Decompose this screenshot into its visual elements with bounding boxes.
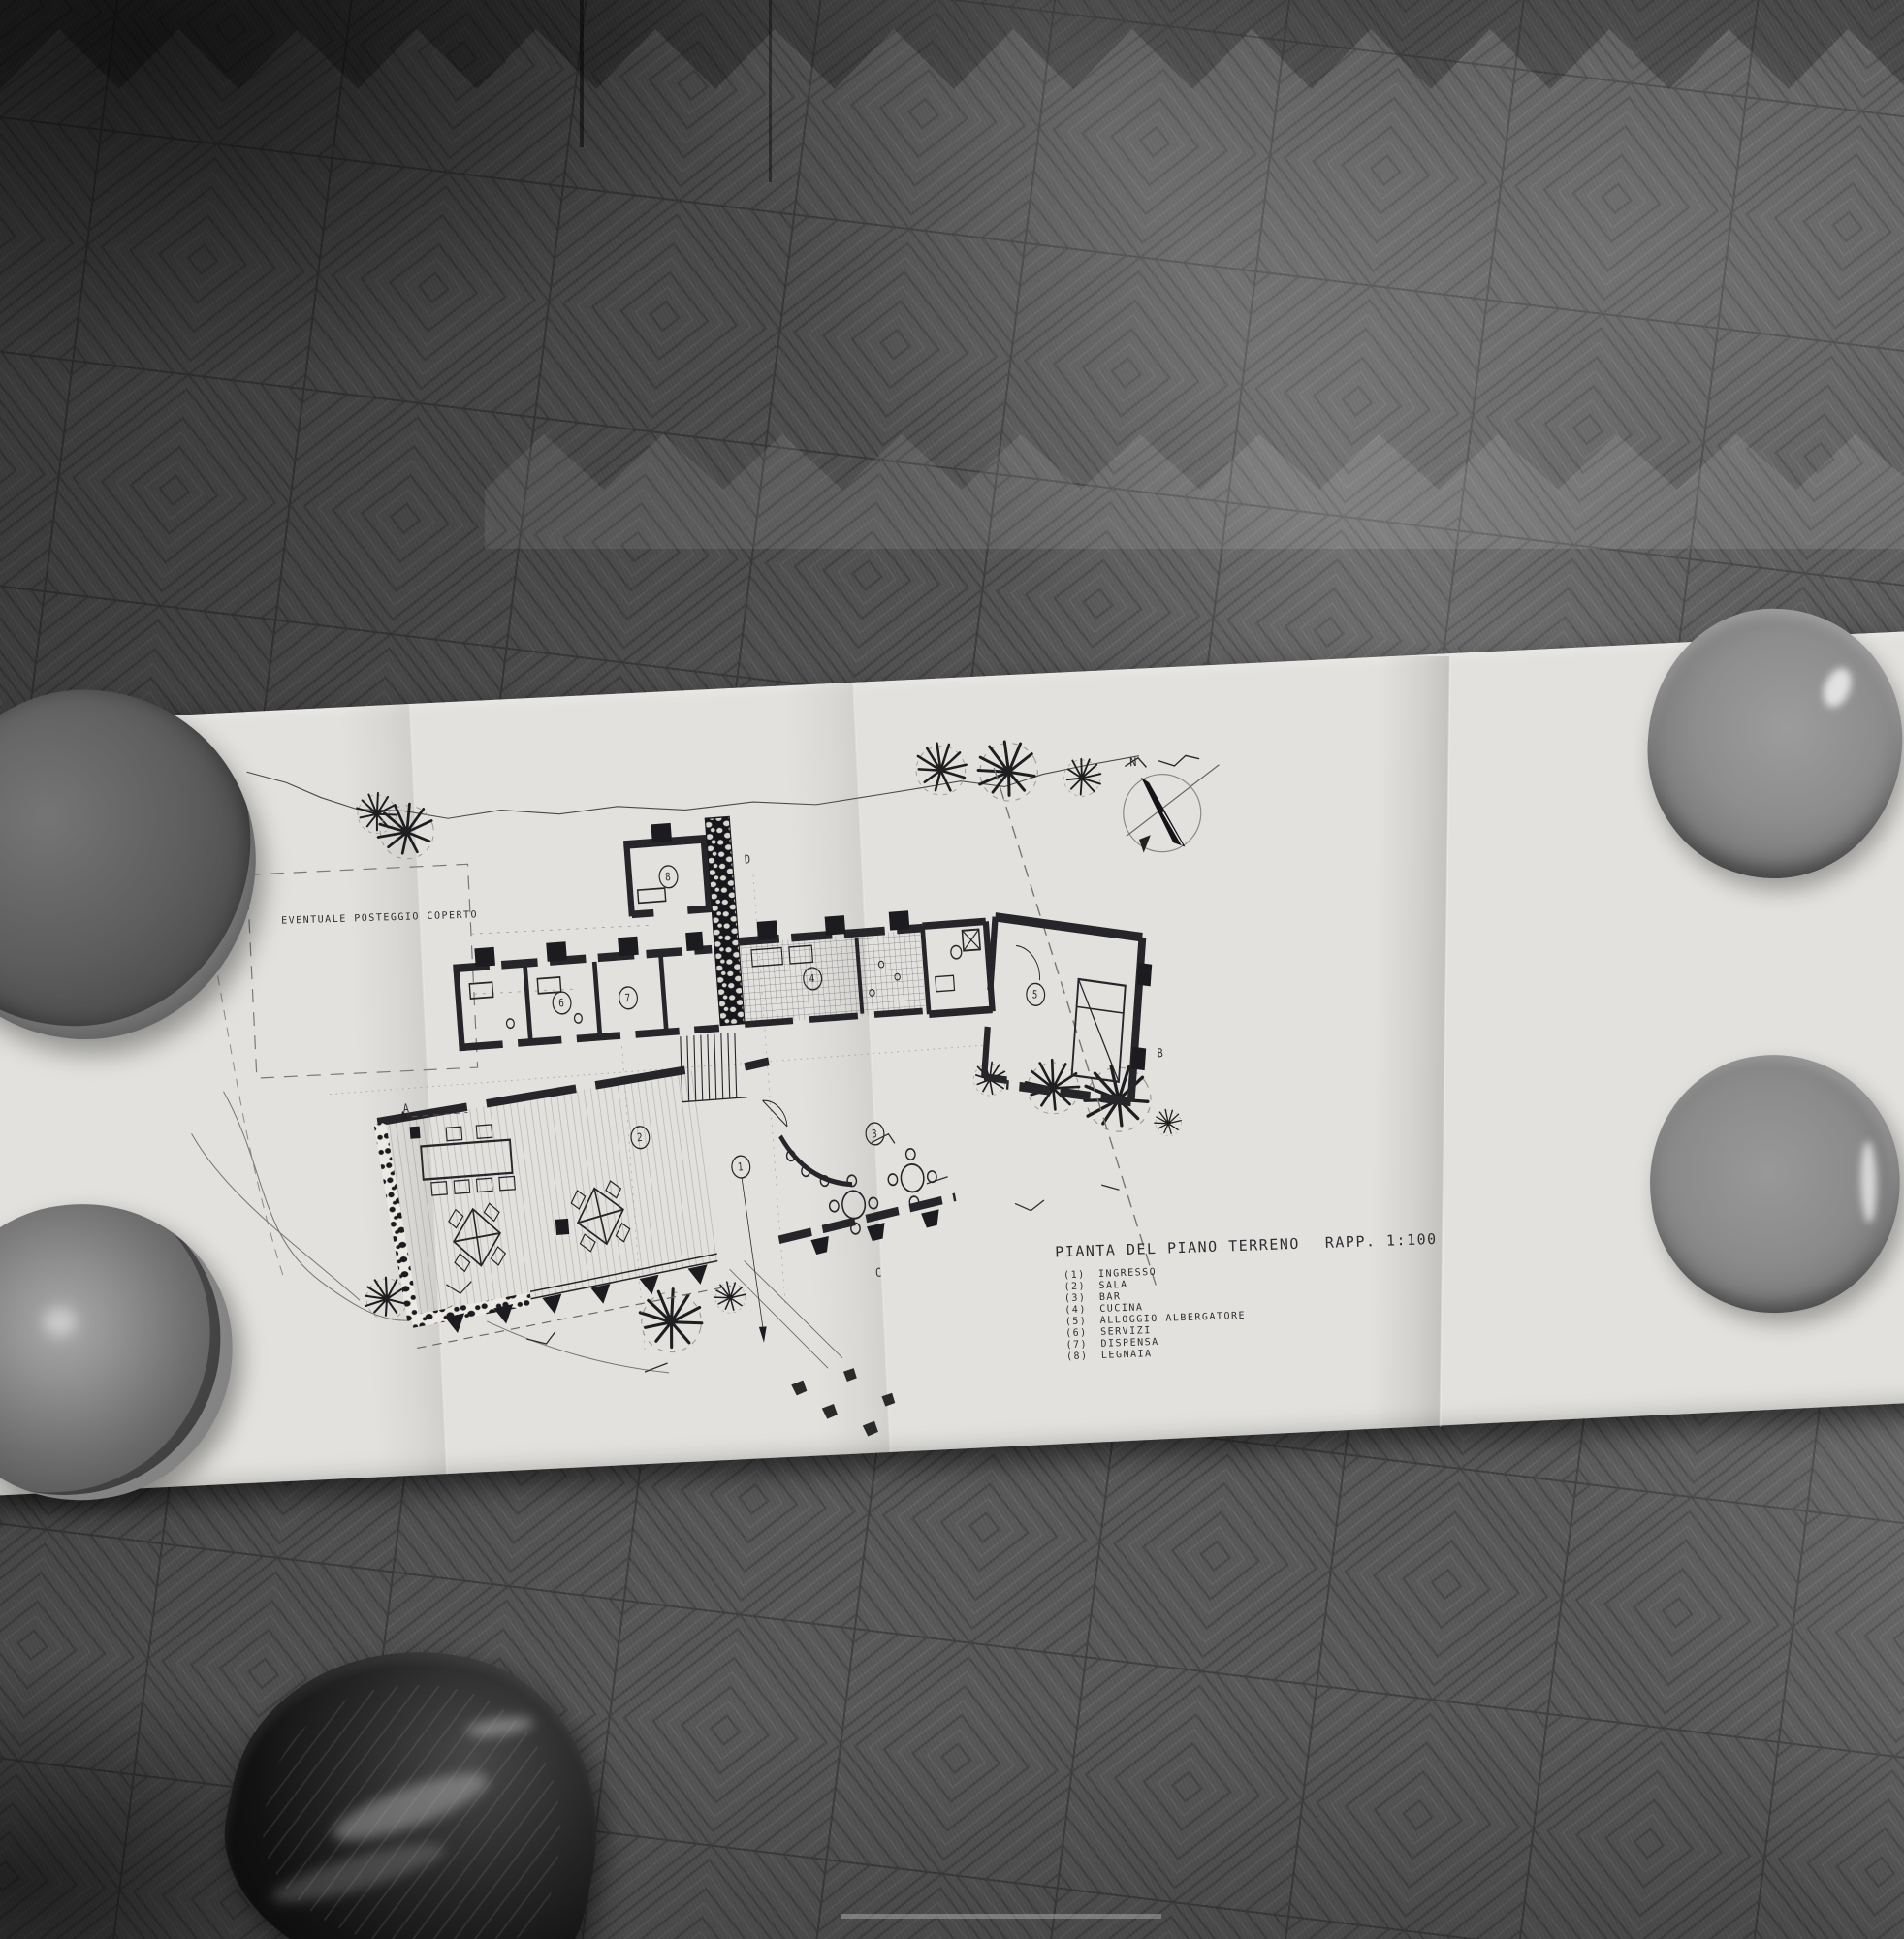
svg-text:7: 7	[624, 992, 632, 1005]
tree-icon	[633, 1284, 708, 1358]
room-number-6: 6	[552, 991, 571, 1014]
room-number-3: 3	[865, 1122, 884, 1145]
section-marker-d: D	[744, 852, 751, 867]
svg-text:6: 6	[558, 997, 566, 1010]
building-plan: 5	[311, 786, 1190, 1475]
shoe-highlight	[464, 1714, 534, 1741]
stone-wall	[705, 816, 745, 1025]
compass-north-label: N	[1129, 755, 1138, 769]
bowl-highlight	[1860, 1141, 1877, 1223]
svg-text:3: 3	[872, 1128, 879, 1141]
guest-wing: 5	[984, 917, 1154, 1103]
legend-item: (1)INGRESSO	[1063, 1267, 1157, 1281]
legend-item: (5)ALLOGGIO ALBERGATORE	[1065, 1311, 1247, 1327]
bowl-highlight	[1818, 664, 1856, 712]
site-plan-drawing: N EVENTUALE POSTEGGIO COPERTO	[0, 628, 1904, 1499]
plank-seam	[769, 0, 772, 182]
plan-legend: (1)INGRESSO (2)SALA (3)BAR (4)CUCINA (5)…	[1063, 1264, 1248, 1362]
photograph: N EVENTUALE POSTEGGIO COPERTO	[0, 0, 1904, 1939]
tree-icon	[1154, 1109, 1182, 1137]
svg-text:8: 8	[665, 871, 673, 884]
room-number-8: 8	[658, 865, 678, 888]
tree-icon	[353, 789, 400, 837]
svg-text:5: 5	[1031, 988, 1039, 1001]
tree-icon	[1056, 750, 1108, 803]
shoe-highlight	[327, 1761, 494, 1854]
tree-icon	[967, 731, 1048, 812]
plank-seam	[580, 0, 584, 147]
shoe-highlight	[269, 1833, 450, 1915]
section-marker-b: B	[1157, 1046, 1164, 1061]
svg-text:2: 2	[636, 1131, 644, 1145]
svg-text:1: 1	[737, 1160, 745, 1174]
room-number-5: 5	[1026, 982, 1045, 1006]
compass-rose: N	[1121, 751, 1223, 854]
room-number-7: 7	[619, 986, 638, 1009]
paper-sheet: N EVENTUALE POSTEGGIO COPERTO	[0, 628, 1904, 1499]
legend-item: (3)BAR	[1064, 1291, 1122, 1304]
terrace-steps	[729, 1251, 898, 1446]
room-number-1: 1	[731, 1155, 768, 1344]
svg-text:4: 4	[809, 972, 816, 986]
plan-title: PIANTA DEL PIANO TERRENORAPP. 1:100	[1055, 1230, 1438, 1261]
legend-item: (2)SALA	[1063, 1280, 1127, 1292]
legend-item: (8)LEGNAIA	[1066, 1349, 1153, 1362]
bowl-highlight	[42, 1305, 78, 1337]
tree-icon	[905, 734, 974, 803]
parking-label: EVENTUALE POSTEGGIO COPERTO	[281, 909, 478, 926]
plank-gap-light	[841, 1914, 1161, 1919]
section-marker-c: C	[875, 1266, 883, 1281]
